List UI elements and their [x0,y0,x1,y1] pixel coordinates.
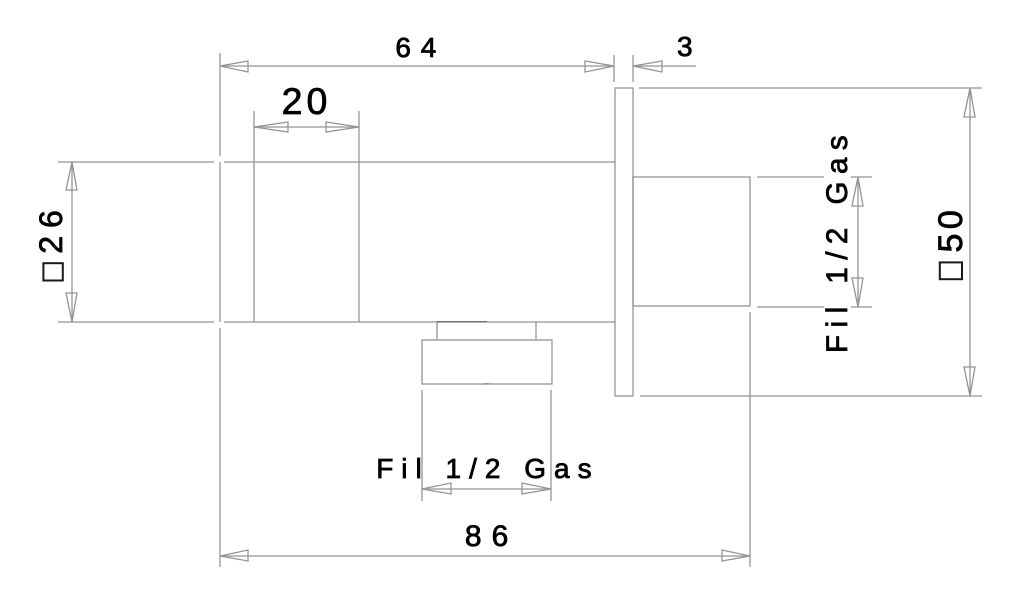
svg-text:3: 3 [677,31,693,62]
svg-text:Fil 1/2 Gas: Fil 1/2 Gas [376,453,599,484]
svg-text:50: 50 [932,206,970,253]
svg-text:86: 86 [465,520,518,553]
svg-text:64: 64 [395,32,446,63]
svg-text:26: 26 [33,202,69,254]
svg-text:20: 20 [282,80,332,122]
svg-text:Fil 1/2 Gas: Fil 1/2 Gas [821,128,854,353]
